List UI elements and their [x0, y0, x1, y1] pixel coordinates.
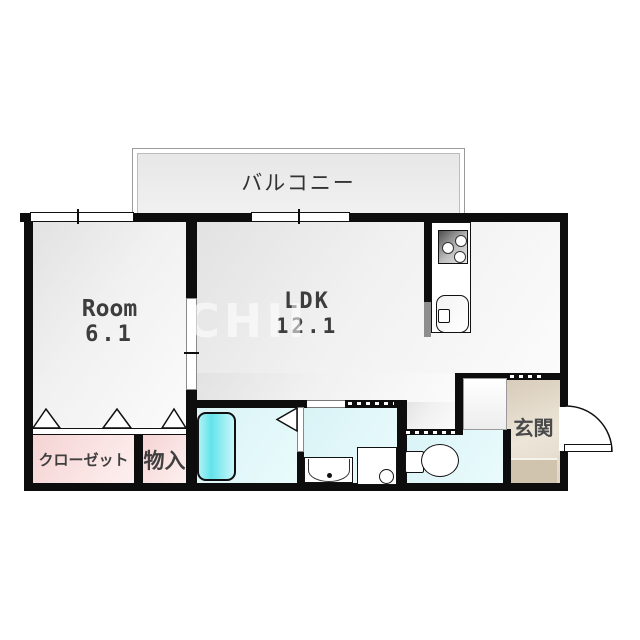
window-tick: [77, 209, 79, 224]
window-icon: [251, 212, 350, 222]
window-icon: [30, 212, 134, 222]
kitchen-sink-icon: [436, 295, 469, 333]
closet-label: クローゼット: [33, 448, 134, 470]
stove-icon: [438, 230, 468, 264]
wall-kitchen: [424, 213, 431, 302]
room-label-group: Room 6.1: [33, 293, 186, 351]
wall-left: [24, 213, 33, 491]
balcony-label: バルコニー: [133, 167, 464, 197]
bathtub-icon: [197, 412, 236, 481]
wall-bath-washroom: [297, 452, 304, 483]
washing-machine-icon: [357, 447, 397, 485]
washbasin-icon: [304, 457, 353, 483]
ldk-floor-toilet-approach: [403, 402, 455, 430]
closet-door-line: [33, 428, 186, 435]
wall-washroom-toilet: [397, 400, 407, 491]
watermark: CHII: [186, 294, 309, 348]
room-area: 6.1: [85, 322, 134, 348]
floorplan-canvas: バルコニー: [0, 0, 640, 640]
balcony-area: バルコニー: [132, 148, 465, 216]
storage-label: 物入: [141, 446, 188, 474]
entrance-label: 玄関: [507, 413, 560, 439]
wall-room-ldk-upper: [186, 213, 197, 298]
entrance-step: [510, 458, 557, 483]
wall-bottom: [24, 483, 568, 491]
washroom-entry-gap: [307, 400, 345, 408]
wall-hall-vertical: [455, 373, 463, 433]
room-name: Room: [82, 296, 137, 322]
wall-bath-top: [186, 400, 307, 408]
wall-washroom-top-dashed: [345, 400, 397, 408]
kitchen-low-partition: [424, 302, 431, 337]
toilet-entry-dashed: [403, 429, 463, 435]
window-tick: [298, 209, 300, 224]
ldk-floor-lower: [197, 373, 455, 402]
bath-washroom-door: [297, 407, 304, 452]
toilet-icon: [421, 444, 459, 477]
door-tick: [184, 352, 199, 354]
wall-entrance-top-dashed: [507, 373, 545, 380]
entrance-door-leaf: [564, 444, 612, 452]
entrance-cabinet: [463, 378, 507, 430]
